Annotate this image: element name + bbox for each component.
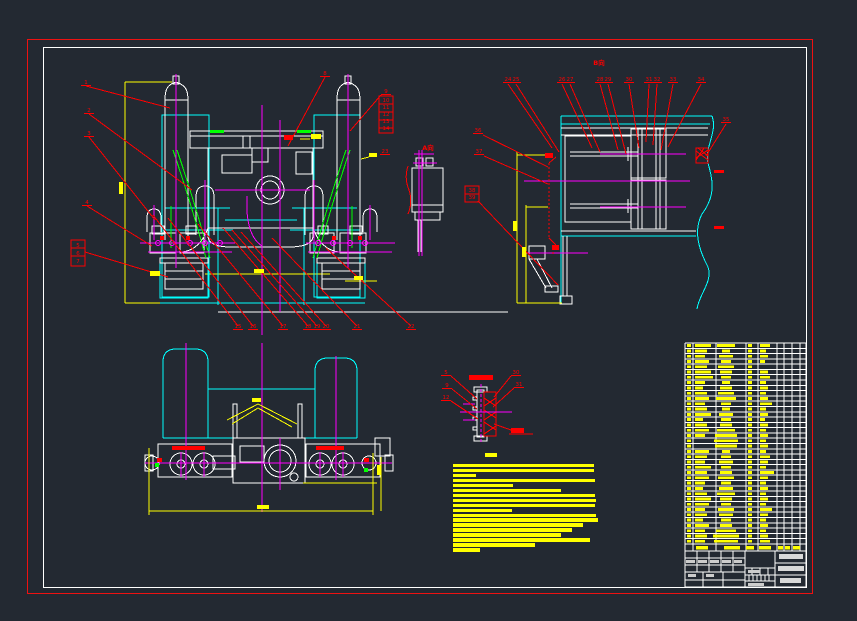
bom-cell-seq <box>687 482 691 485</box>
bom-cell-qty <box>748 482 752 485</box>
bom-cell-spec <box>721 402 731 405</box>
tech-requirements-line <box>453 509 512 512</box>
bom-cell-qty <box>748 519 752 522</box>
bom-cell-name <box>695 498 711 501</box>
bom-cell-name <box>695 471 707 474</box>
bom-cell-spec <box>720 424 732 427</box>
bom-cell-spec <box>716 529 736 532</box>
bom-cell-qty <box>748 471 752 474</box>
bom-cell-name <box>695 413 711 416</box>
bom-cell-seq <box>687 513 691 516</box>
bom-cell-material <box>760 376 770 379</box>
bom-cell-spec <box>718 508 734 511</box>
leader-line <box>87 206 152 246</box>
bom-cell-material <box>760 371 768 374</box>
detail-view-title <box>469 375 493 380</box>
bom-cell-spec <box>713 535 739 538</box>
bom-cell-seq <box>687 461 691 464</box>
bom-cell-spec <box>717 344 735 347</box>
bom-cell-seq <box>687 371 691 374</box>
bom-cell-seq <box>687 487 691 490</box>
bom-cell-name <box>695 503 709 506</box>
dimension-text <box>119 182 123 194</box>
bom-cell-seq <box>687 529 691 532</box>
detail-view-section <box>460 384 512 444</box>
leader-line <box>706 124 726 156</box>
bom-cell-material <box>760 508 772 511</box>
dimension-text <box>377 465 381 475</box>
bom-cell-name <box>695 492 707 495</box>
bom-cell-spec <box>719 513 733 516</box>
bom-cell-qty <box>748 349 752 352</box>
bom-cell-spec <box>722 450 730 453</box>
dimension-text <box>257 505 269 509</box>
bom-cell-material <box>760 503 766 506</box>
bom-cell-material <box>760 387 768 390</box>
part-number-balloon: 13 <box>383 119 390 125</box>
leader-line <box>646 84 649 142</box>
bom-cell-qty <box>748 413 752 416</box>
bom-cell-name <box>695 349 707 352</box>
bom-cell-seq <box>687 439 691 442</box>
bom-cell-qty <box>748 455 752 458</box>
bom-cell-spec <box>719 487 733 490</box>
dimension-text <box>252 398 261 402</box>
bom-cell-material <box>760 471 774 474</box>
bom-cell-name <box>695 540 705 543</box>
bom-cell-name <box>695 487 703 490</box>
bom-cell-qty <box>748 535 752 538</box>
bom-cell-name <box>695 482 705 485</box>
bom-cell-material <box>760 392 766 395</box>
part-number-balloon: 39 <box>469 195 476 201</box>
bom-cell-seq <box>687 535 691 538</box>
bom-cell-material <box>760 466 766 469</box>
bom-cell-qty <box>748 365 752 368</box>
dimension-text <box>513 221 517 231</box>
bom-header-text <box>746 546 754 550</box>
bom-cell-qty <box>748 344 752 347</box>
bom-cell-seq <box>687 455 691 458</box>
bom-cell-material <box>760 524 768 527</box>
bom-cell-name <box>695 466 711 469</box>
bom-cell-seq <box>687 540 691 543</box>
part-number-balloon: 6 <box>76 251 80 257</box>
bom-cell-material <box>760 540 770 543</box>
tech-requirements-line <box>453 523 583 526</box>
bom-cell-qty <box>748 392 752 395</box>
bom-cell-material <box>760 349 766 352</box>
tech-requirements-line <box>453 528 572 531</box>
bom-cell-seq <box>687 519 691 522</box>
bom-cell-material <box>760 424 768 427</box>
bom-cell-spec <box>719 461 733 464</box>
leader-line <box>484 156 548 184</box>
bom-cell-seq <box>687 392 691 395</box>
dimension-text <box>150 271 160 276</box>
tech-requirements-line <box>453 474 476 477</box>
bom-cell-material <box>760 355 768 358</box>
bom-cell-seq <box>687 429 691 432</box>
bom-cell-material <box>760 418 765 421</box>
bom-cell-qty <box>748 418 752 421</box>
bom-cell-name <box>695 476 709 479</box>
bom-cell-qty <box>748 524 752 527</box>
bom-cell-spec <box>718 365 734 368</box>
bom-cell-spec <box>716 397 736 400</box>
bom-cell-material <box>760 408 766 411</box>
bom-cell-name <box>695 434 705 437</box>
leader-line <box>478 201 558 285</box>
dimension-text <box>369 153 377 157</box>
bom-cell-seq <box>687 418 691 421</box>
bom-header-text <box>696 546 708 550</box>
cad-drawing-screenshot: 1234567891011121314151617181920212223242… <box>0 0 857 621</box>
bom-cell-name <box>695 387 703 390</box>
dimension-text <box>254 269 264 273</box>
bom-cell-seq <box>687 408 691 411</box>
bom-cell-spec <box>722 349 730 352</box>
bom-cell-spec <box>717 492 735 495</box>
bom-cell-spec <box>717 429 735 432</box>
bom-cell-spec <box>720 371 732 374</box>
bom-cell-seq <box>687 376 691 379</box>
bom-cell-qty <box>748 450 752 453</box>
bom-cell-name <box>695 418 703 421</box>
leader-line <box>494 424 511 430</box>
bom-cell-spec <box>719 413 733 416</box>
bom-cell-name <box>695 360 709 363</box>
title-block-text <box>722 560 731 563</box>
leader-line <box>508 84 552 148</box>
bom-cell-seq <box>687 503 691 506</box>
tech-requirements-line <box>453 479 595 482</box>
bom-parts-table <box>685 343 806 551</box>
bom-cell-material <box>760 513 768 516</box>
bom-cell-spec <box>721 503 731 506</box>
bom-cell-material <box>760 445 768 448</box>
bom-cell-spec <box>718 476 734 479</box>
front-view <box>125 74 508 335</box>
leader-line <box>600 84 618 150</box>
bom-cell-qty <box>748 402 752 405</box>
bom-cell-qty <box>748 429 752 432</box>
bom-cell-name <box>695 461 705 464</box>
bom-cell-qty <box>748 513 752 516</box>
tech-requirements-line <box>453 464 594 467</box>
bom-cell-name <box>695 529 705 532</box>
tech-requirements-line <box>453 533 561 536</box>
bom-cell-name <box>695 376 713 379</box>
title-block-text <box>778 566 804 571</box>
bom-cell-qty <box>748 508 752 511</box>
tech-requirements-line <box>453 543 535 546</box>
bom-cell-qty <box>748 476 752 479</box>
bom-cell-material <box>760 402 772 405</box>
bom-cell-qty <box>748 466 752 469</box>
bom-cell-qty <box>748 434 752 437</box>
bom-cell-material <box>760 529 766 532</box>
bom-cell-name <box>695 381 705 384</box>
bom-cell-material <box>760 482 766 485</box>
bom-cell-seq <box>687 387 691 390</box>
leader-line <box>168 218 253 326</box>
bom-cell-qty <box>748 445 752 448</box>
bom-cell-qty <box>748 371 752 374</box>
part-number-balloon: 38 <box>469 188 476 194</box>
bom-cell-qty <box>748 355 752 358</box>
bom-cell-name <box>695 365 707 368</box>
bom-cell-material <box>760 344 770 347</box>
tech-requirements-line <box>453 499 596 502</box>
title-block-text <box>779 554 803 559</box>
bom-cell-seq <box>687 381 691 384</box>
bom-header-text <box>785 546 790 550</box>
part-number-balloon: 7 <box>76 259 80 265</box>
tech-requirements-line <box>453 494 595 497</box>
tech-requirements-line <box>453 518 598 521</box>
title-block-text <box>710 560 719 563</box>
tech-requirements-line <box>453 484 513 487</box>
bom-cell-qty <box>748 529 752 532</box>
bom-cell-seq <box>687 434 691 437</box>
bom-cell-name <box>695 429 709 432</box>
bom-cell-material <box>760 461 768 464</box>
dimension-text <box>311 134 321 139</box>
bom-cell-name <box>695 402 705 405</box>
bom-cell-spec <box>721 418 731 421</box>
title-block-text <box>734 560 742 563</box>
detail-tag <box>511 428 524 433</box>
title-block-text <box>686 560 695 563</box>
bom-cell-seq <box>687 466 691 469</box>
side-view <box>517 116 724 309</box>
part-number-balloon: 10 <box>383 98 390 104</box>
bom-cell-qty <box>748 492 752 495</box>
tech-requirements-line <box>453 469 594 472</box>
leader-line <box>86 86 170 108</box>
bom-cell-name <box>695 344 711 347</box>
bom-cell-qty <box>748 387 752 390</box>
leader-line <box>89 137 155 220</box>
bom-cell-qty <box>748 540 752 543</box>
bom-cell-material <box>760 434 768 437</box>
bom-cell-name <box>695 455 707 458</box>
bom-cell-seq <box>687 355 691 358</box>
bom-cell-name <box>695 535 707 538</box>
bom-cell-seq <box>687 524 691 527</box>
bom-cell-spec <box>722 381 730 384</box>
bom-cell-spec <box>721 376 731 379</box>
bom-cell-qty <box>748 397 752 400</box>
bom-cell-material <box>760 455 770 458</box>
bom-cell-qty <box>748 381 752 384</box>
bom-cell-spec <box>719 355 733 358</box>
bom-cell-material <box>760 519 766 522</box>
leader-line <box>570 84 600 152</box>
bom-cell-spec <box>720 498 732 501</box>
bom-cell-spec <box>721 482 731 485</box>
title-block <box>685 551 806 587</box>
bom-cell-qty <box>748 498 752 501</box>
bom-header-text <box>724 546 740 550</box>
part-number-balloon: 12 <box>383 112 390 118</box>
view-direction-label: A向 <box>422 143 434 152</box>
bom-cell-seq <box>687 344 691 347</box>
bom-cell-material <box>760 498 768 501</box>
leader-line <box>89 114 192 190</box>
bom-header-text <box>759 546 771 550</box>
leader-line <box>494 376 511 397</box>
title-block-text <box>748 570 760 573</box>
top-view <box>145 343 393 515</box>
bom-cell-seq <box>687 492 691 495</box>
tech-requirements-line <box>453 548 480 551</box>
tech-requirements-line <box>453 489 561 492</box>
bom-cell-material <box>760 439 766 442</box>
bom-cell-qty <box>748 439 752 442</box>
bom-cell-name <box>695 397 709 400</box>
bom-cell-spec <box>722 408 730 411</box>
bom-cell-seq <box>687 471 691 474</box>
bom-cell-qty <box>748 503 752 506</box>
bom-cell-material <box>760 360 765 363</box>
leader-line <box>516 84 559 152</box>
bom-cell-spec <box>720 524 732 527</box>
bom-cell-seq <box>687 476 691 479</box>
bom-header-text <box>778 546 783 550</box>
bom-cell-material <box>760 535 768 538</box>
leader-line <box>326 248 411 326</box>
bom-cell-material <box>760 476 768 479</box>
leader-line <box>608 84 626 154</box>
bom-cell-seq <box>687 498 691 501</box>
bom-cell-qty <box>748 360 752 363</box>
bom-cell-spec <box>714 439 738 442</box>
leader-line <box>223 228 308 326</box>
part-number-balloon: 11 <box>383 105 390 111</box>
tech-requirements-line <box>453 514 596 517</box>
title-block-text <box>698 560 707 563</box>
bom-cell-name <box>695 371 711 374</box>
bom-cell-name <box>695 519 703 522</box>
bom-cell-spec <box>721 360 731 363</box>
bom-cell-seq <box>687 508 691 511</box>
bom-cell-material <box>760 429 766 432</box>
part-number-balloon: 5 <box>76 243 80 249</box>
bom-cell-seq <box>687 424 691 427</box>
bom-cell-name <box>695 450 709 453</box>
leader-line <box>483 135 548 167</box>
title-block-text <box>748 583 764 586</box>
dimension-text <box>522 247 526 257</box>
bom-cell-qty <box>748 408 752 411</box>
bom-cell-spec <box>715 434 737 437</box>
drawing-canvas[interactable]: 1234567891011121314151617181920212223242… <box>0 0 857 621</box>
bom-cell-material <box>760 381 766 384</box>
bom-cell-seq <box>687 413 691 416</box>
bom-cell-spec <box>718 392 734 395</box>
bom-cell-qty <box>748 424 752 427</box>
bom-cell-qty <box>748 376 752 379</box>
part-number-balloon: 14 <box>383 126 390 132</box>
tech-requirements-title <box>485 453 497 457</box>
bom-cell-spec <box>720 387 732 390</box>
bom-cell-name <box>695 424 707 427</box>
bom-cell-seq <box>687 365 691 368</box>
bom-cell-spec <box>721 466 731 469</box>
tech-requirements-line <box>453 538 590 541</box>
title-block-text <box>780 578 801 583</box>
bom-cell-material <box>760 397 768 400</box>
title-block-text <box>688 574 696 577</box>
bom-cell-spec <box>721 455 731 458</box>
title-block-text <box>706 574 714 577</box>
bom-cell-seq <box>687 360 691 363</box>
bom-cell-name <box>695 355 705 358</box>
detail-view-a <box>406 150 443 256</box>
bom-cell-seq <box>687 349 691 352</box>
bom-cell-name <box>695 524 709 527</box>
bom-cell-seq <box>687 402 691 405</box>
bom-cell-seq <box>687 450 691 453</box>
dimension-text <box>354 276 363 280</box>
bom-cell-material <box>760 450 766 453</box>
bom-cell-name <box>695 392 707 395</box>
bom-cell-seq <box>687 397 691 400</box>
bom-cell-qty <box>748 461 752 464</box>
bom-cell-name <box>695 513 707 516</box>
bom-cell-name <box>695 408 707 411</box>
view-direction-label: B向 <box>593 58 605 67</box>
bom-cell-spec <box>715 445 737 448</box>
bom-header-text <box>793 546 800 550</box>
bom-cell-seq <box>687 445 691 448</box>
bom-cell-material <box>760 487 768 490</box>
bom-cell-material <box>760 492 766 495</box>
tech-requirements-line <box>453 504 595 507</box>
bom-cell-qty <box>748 487 752 490</box>
bom-cell-material <box>760 413 768 416</box>
bom-cell-spec <box>714 540 738 543</box>
bom-cell-spec <box>720 471 732 474</box>
bom-cell-spec <box>721 519 731 522</box>
bom-cell-name <box>695 508 705 511</box>
